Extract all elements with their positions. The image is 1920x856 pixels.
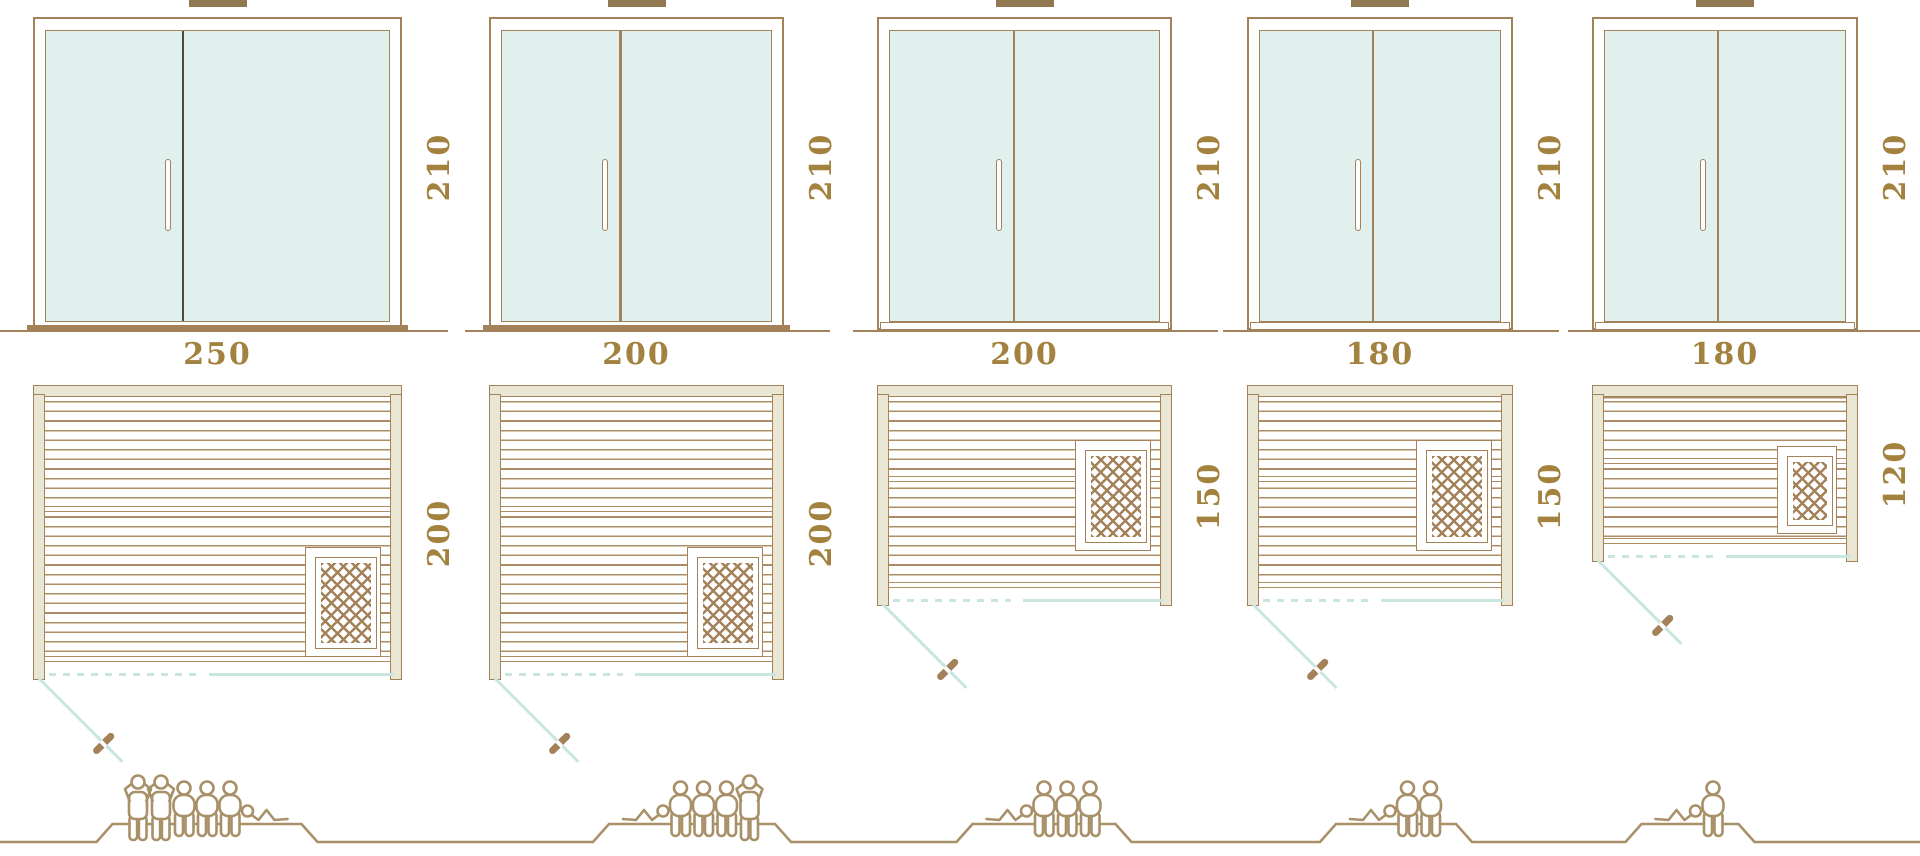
door-glass-panels	[45, 30, 390, 322]
door-opening-line	[635, 673, 776, 676]
plan-side-wall-right	[1160, 394, 1172, 606]
door-elevation	[1247, 17, 1513, 330]
plan-side-wall-right	[1846, 394, 1858, 562]
door-top-vent	[996, 0, 1054, 7]
floor-plan	[877, 385, 1172, 606]
width-dimension-label: 180	[1592, 340, 1858, 370]
ground-line	[465, 330, 830, 332]
door-leaf-divider	[182, 31, 184, 321]
floor-plan	[489, 385, 784, 680]
person-seated-icon	[670, 782, 691, 837]
door-threshold	[1595, 322, 1855, 330]
person-seated-icon	[1397, 782, 1418, 837]
door-leaf-divider	[1717, 31, 1719, 321]
door-swing-line	[494, 677, 580, 763]
door-opening-dashed-line	[1263, 599, 1369, 602]
heater-grate-icon	[1793, 462, 1827, 520]
door-opening-dashed-line	[893, 599, 1011, 602]
door-swing-line	[1597, 559, 1683, 645]
door-opening-dashed-line	[1608, 555, 1714, 558]
door-handle	[1700, 159, 1706, 231]
plan-side-wall-left	[1592, 394, 1604, 562]
ground-line	[1568, 330, 1920, 332]
door-swing-line	[38, 677, 124, 763]
door-elevation	[1592, 17, 1858, 330]
person-lying-icon	[987, 806, 1033, 821]
door-top-vent	[1351, 0, 1409, 7]
heater-grate-icon	[1091, 456, 1141, 537]
height-dimension-label: 210	[1536, 122, 1566, 212]
depth-dimension-label: 200	[425, 488, 455, 578]
door-opening-line	[1381, 599, 1505, 602]
door-top-vent	[189, 0, 247, 7]
plan-side-wall-right	[1501, 394, 1513, 606]
heater-box	[315, 557, 377, 649]
height-dimension-label: 210	[1881, 122, 1911, 212]
person-lying-icon	[1350, 806, 1396, 821]
door-opening-dashed-line	[49, 673, 197, 676]
floor-plan	[1592, 385, 1858, 562]
capacity-group-sauna-200x200	[623, 776, 763, 841]
plan-bench-slats	[501, 397, 772, 663]
heater-grate-icon	[321, 563, 371, 643]
door-opening-line	[1726, 555, 1850, 558]
ground-line	[1223, 330, 1559, 332]
heater-niche	[1777, 446, 1837, 534]
capacity-figures	[0, 756, 1920, 856]
plan-side-wall-right	[390, 394, 402, 680]
heater-box	[697, 557, 759, 649]
person-lying-icon	[623, 806, 669, 821]
bench-edge	[501, 506, 772, 512]
heater-niche	[1075, 440, 1151, 551]
door-threshold	[1250, 322, 1510, 330]
door-top-vent	[608, 0, 666, 7]
ground-line	[0, 330, 448, 332]
person-seated-icon	[1703, 782, 1724, 837]
width-dimension-label: 250	[33, 340, 402, 370]
person-seated-icon	[716, 782, 737, 837]
door-handle	[996, 159, 1002, 231]
plan-side-wall-left	[1247, 394, 1259, 606]
plan-side-wall-right	[772, 394, 784, 680]
person-seated-icon	[174, 782, 195, 837]
plan-bench-slats	[889, 397, 1160, 589]
door-elevation	[489, 17, 784, 330]
capacity-group-sauna-250x200	[125, 776, 288, 841]
bench-edge	[1604, 538, 1846, 544]
plan-bench-slats	[1259, 397, 1501, 589]
door-top-vent	[1696, 0, 1754, 7]
depth-dimension-label: 200	[807, 488, 837, 578]
person-seated-icon	[693, 782, 714, 837]
height-dimension-label: 210	[1195, 122, 1225, 212]
height-dimension-label: 210	[425, 122, 455, 212]
sauna-column-sauna-200x200: 200 210 200	[489, 0, 784, 856]
person-standing-icon	[148, 776, 174, 841]
width-dimension-label: 180	[1247, 340, 1513, 370]
plan-back-wall	[1247, 385, 1513, 397]
sauna-column-sauna-180x150: 180 210 150	[1247, 0, 1513, 856]
bench-edge	[889, 582, 1160, 588]
sauna-column-sauna-250x200: 250 210 200	[33, 0, 402, 856]
person-lying-icon	[1656, 806, 1702, 821]
person-standing-icon	[737, 776, 763, 841]
person-standing-icon	[125, 776, 151, 841]
width-dimension-label: 200	[489, 340, 784, 370]
width-dimension-label: 200	[877, 340, 1172, 370]
heater-niche	[305, 547, 381, 657]
ground-line	[853, 330, 1218, 332]
door-handle	[602, 159, 608, 231]
floor-plan	[1247, 385, 1513, 606]
height-dimension-label: 210	[807, 122, 837, 212]
depth-dimension-label: 150	[1536, 451, 1566, 541]
person-seated-icon	[197, 782, 218, 837]
heater-box	[1787, 456, 1833, 526]
door-opening-line	[1023, 599, 1164, 602]
door-leaf-divider	[619, 31, 621, 321]
depth-dimension-label: 120	[1881, 429, 1911, 519]
door-threshold	[880, 322, 1169, 330]
capacity-group-sauna-180x120	[1656, 782, 1724, 837]
capacity-group-sauna-180x150	[1350, 782, 1441, 837]
person-seated-icon	[1080, 782, 1101, 837]
bench-edge	[1259, 582, 1501, 588]
bench-edge	[45, 506, 390, 512]
sauna-column-sauna-180x120: 180 210 120	[1592, 0, 1858, 856]
heater-box	[1426, 450, 1488, 543]
door-elevation	[877, 17, 1172, 330]
door-handle	[165, 159, 171, 231]
person-seated-icon	[1034, 782, 1055, 837]
heater-grate-icon	[1432, 456, 1482, 537]
heater-grate-icon	[703, 563, 753, 643]
door-swing-line	[1252, 603, 1338, 689]
person-seated-icon	[1057, 782, 1078, 837]
plan-side-wall-left	[489, 394, 501, 680]
door-elevation	[33, 17, 402, 330]
plan-back-wall	[489, 385, 784, 397]
heater-niche	[1416, 440, 1492, 551]
plan-side-wall-left	[33, 394, 45, 680]
plan-side-wall-left	[877, 394, 889, 606]
door-leaf-divider	[1372, 31, 1374, 321]
sauna-size-comparison-diagram: 250 210 200	[0, 0, 1920, 856]
door-opening-line	[209, 673, 394, 676]
door-leaf-divider	[1013, 31, 1015, 321]
plan-back-wall	[877, 385, 1172, 397]
person-lying-icon	[242, 806, 288, 821]
bench-baseline	[0, 824, 1920, 842]
plan-bench-slats	[1604, 397, 1846, 545]
floor-plan	[33, 385, 402, 680]
person-seated-icon	[1420, 782, 1441, 837]
heater-niche	[687, 547, 763, 657]
door-opening-dashed-line	[505, 673, 623, 676]
door-glass-panels	[1259, 30, 1501, 322]
plan-back-wall	[33, 385, 402, 397]
door-glass-panels	[889, 30, 1160, 322]
depth-dimension-label: 150	[1195, 451, 1225, 541]
plan-bench-slats	[45, 397, 390, 663]
sauna-column-sauna-200x150: 200 210 150	[877, 0, 1172, 856]
door-swing-line	[882, 603, 968, 689]
door-handle	[1355, 159, 1361, 231]
door-glass-panels	[501, 30, 772, 322]
door-glass-panels	[1604, 30, 1846, 322]
heater-box	[1085, 450, 1147, 543]
person-seated-icon	[220, 782, 241, 837]
plan-back-wall	[1592, 385, 1858, 397]
capacity-group-sauna-200x150	[987, 782, 1101, 837]
